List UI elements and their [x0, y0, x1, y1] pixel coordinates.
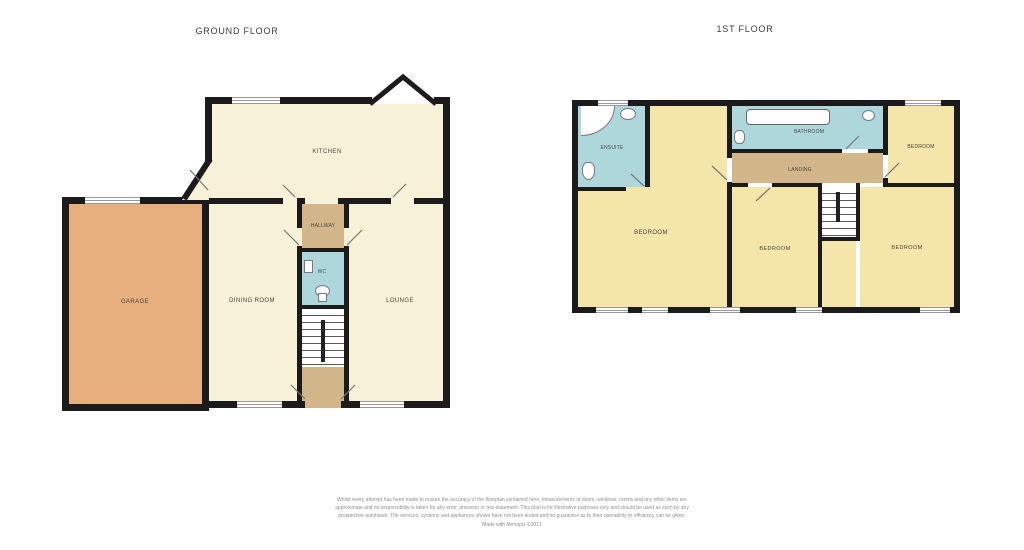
door-swing: [393, 184, 406, 197]
disclaimer-block: Whilst every attempt has been made to en…: [326, 497, 698, 530]
door-swing: [284, 230, 299, 245]
door-swing: [631, 174, 644, 186]
floorplan-canvas: GROUND FLOOR 1ST FLOOR: [0, 0, 1024, 550]
disclaimer-text: Whilst every attempt has been made to en…: [326, 497, 698, 520]
door-swing: [291, 385, 305, 399]
door-swings-overlay: [0, 0, 1024, 550]
door-swing: [885, 163, 899, 177]
door-swing: [712, 166, 727, 180]
metropix-credit: Made with Metropix ©2021: [326, 522, 698, 530]
door-swing: [846, 136, 859, 149]
door-swing: [283, 185, 295, 197]
bay-infill: [372, 77, 434, 103]
door-swing: [756, 188, 770, 201]
door-swing: [347, 230, 362, 245]
door-swing: [341, 385, 355, 399]
